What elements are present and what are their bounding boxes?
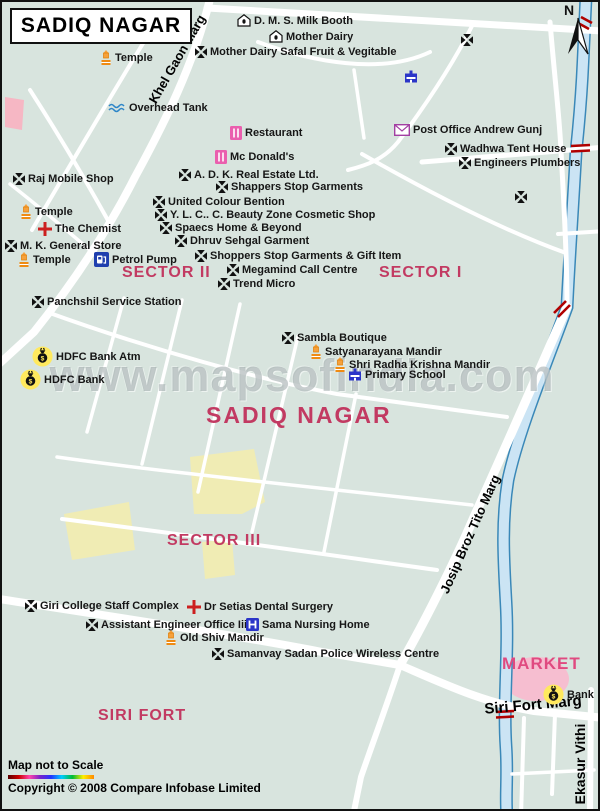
park-area	[202, 539, 235, 579]
pink-zone	[5, 97, 24, 130]
rainbow-scale-bar	[8, 775, 94, 779]
north-label: N	[564, 2, 574, 18]
map-graphics	[2, 2, 598, 809]
map-container: www.mapsofindia.com SADIQ NAGAR N SECTOR…	[0, 0, 600, 811]
map-title: SADIQ NAGAR	[10, 8, 192, 44]
park-area	[64, 502, 135, 560]
market-zone	[503, 657, 569, 701]
watermark: www.mapsofindia.com	[32, 350, 572, 402]
copyright-text: Copyright © 2008 Compare Infobase Limite…	[8, 781, 261, 795]
scale-note: Map not to Scale	[8, 758, 103, 772]
